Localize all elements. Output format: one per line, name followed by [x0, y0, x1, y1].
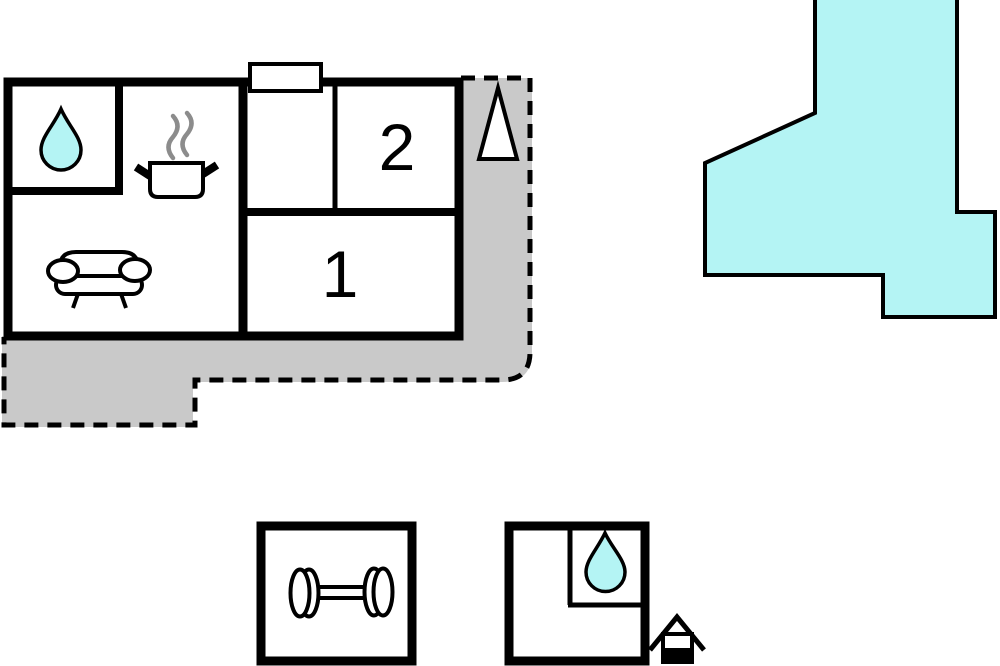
bathroom-annex [509, 526, 645, 661]
floor-plan-drawing: 2 1 [0, 0, 1000, 666]
sofa-right-arm [120, 259, 150, 281]
main-building: 2 1 [6, 64, 459, 336]
well-house-icon [650, 617, 704, 663]
gym-annex [261, 526, 412, 661]
pond-shape [705, 0, 995, 317]
floor-plan-canvas: 2 1 [0, 0, 1000, 666]
window-marker [250, 64, 321, 91]
room-2-label: 2 [379, 110, 416, 184]
sofa-left-arm [48, 260, 78, 282]
well-house-base [662, 648, 693, 663]
room-1-label: 1 [322, 237, 359, 311]
annex-bathroom-outer-wall [509, 526, 645, 661]
